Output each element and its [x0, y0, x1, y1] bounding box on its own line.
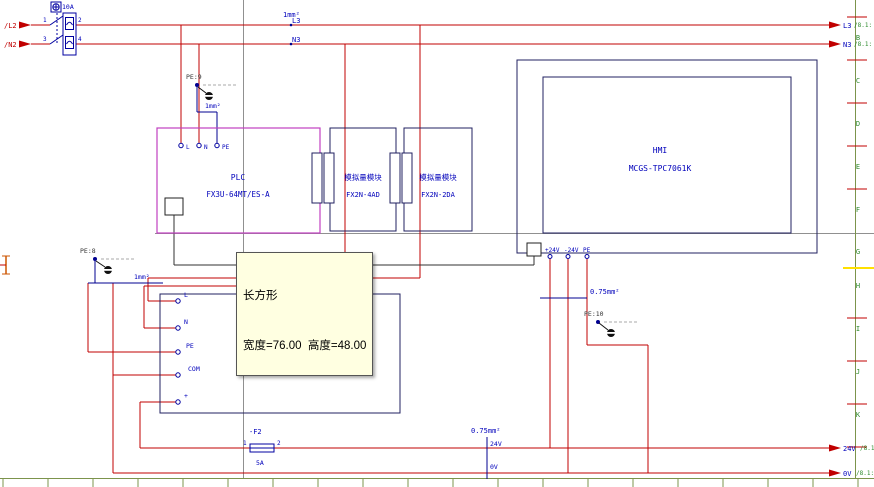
net-n3-label: N3: [292, 36, 300, 44]
row-letter: J: [856, 368, 860, 376]
xref-l3: /8.1:: [854, 22, 872, 29]
hmi-outer: [517, 60, 817, 253]
pe9-label: PE:9: [186, 73, 202, 81]
drawing-frame: B C D E F G H I J K: [0, 0, 874, 487]
breaker-pin: 4: [78, 36, 82, 43]
psu-terminal-plus: +: [184, 392, 188, 400]
arrow-out-l3: [829, 22, 841, 29]
module-1-title: 模拟量模块: [344, 172, 382, 182]
plc-terminal-n: N: [204, 144, 208, 151]
arrow-out-n3: [829, 41, 841, 48]
source-l2-label: /L2: [4, 22, 17, 30]
net-24v-out: 24V: [843, 445, 856, 453]
breaker-pin: 2: [78, 17, 82, 24]
row-letter: G: [856, 248, 860, 256]
plc-terminal-l: L: [186, 144, 190, 151]
measurement-tooltip: 长方形 宽度=76.00 高度=48.00: [236, 252, 373, 376]
arrow-in-l2: [19, 22, 31, 29]
row-letter: F: [856, 206, 860, 214]
net-0v-out: 0V: [843, 470, 852, 478]
row-letter: K: [856, 411, 861, 419]
row-letter: E: [856, 163, 860, 171]
wire-size-pe10: 0.75mm²: [590, 288, 620, 296]
frame-bottom-ticks: [3, 478, 858, 487]
bus-connector: [312, 153, 322, 203]
cad-schematic-canvas: B C D E F G H I J K: [0, 0, 874, 487]
net-l3-out: L3: [843, 22, 851, 30]
net-n3-out: N3: [843, 41, 851, 49]
fuse-pin-1: 1: [243, 440, 247, 447]
bus-connector: [324, 153, 334, 203]
tooltip-detail: 宽度=76.00 高度=48.00: [243, 338, 366, 355]
hmi-model: MCGS-TPC7061K: [629, 164, 692, 173]
wire-size-pe9: 1mm²: [205, 102, 221, 110]
wire-labels: /L2 /N2 10A 1 2 3 4 1mm² L3 N3 1mm² 1mm²…: [4, 3, 874, 478]
schematic-svg: B C D E F G H I J K: [0, 0, 874, 487]
plc-model: FX3U-64MT/ES-A: [206, 190, 270, 199]
arrow-out-0v: [829, 470, 841, 477]
construction-lines: [155, 0, 874, 478]
wire-size-pe8: 1mm²: [134, 273, 150, 281]
fuse-pin-2: 2: [277, 440, 281, 447]
plc-block[interactable]: L N PE PLC FX3U-64MT/ES-A: [157, 128, 320, 233]
module-2-model: FX2N-2DA: [421, 191, 456, 199]
hmi-comm-port[interactable]: [527, 243, 541, 256]
arrow-in-n2: [19, 41, 31, 48]
bus-connector: [390, 153, 400, 203]
row-letter: H: [856, 282, 860, 290]
net-0v-marker: 0V: [490, 463, 498, 471]
hmi-title: HMI: [653, 146, 668, 155]
psu-terminal-n: N: [184, 318, 188, 326]
plc-comm-port[interactable]: [165, 198, 183, 215]
power-wires[interactable]: [31, 25, 829, 473]
psu-terminal-l: L: [184, 291, 188, 299]
pen-cursor-icon: [96, 261, 112, 274]
hmi-terminal-pe: PE: [583, 247, 591, 254]
fuse-tag: -F2: [249, 428, 262, 436]
left-edge-symbol: [0, 256, 10, 274]
xref-0v: /8.1:: [856, 470, 874, 477]
psu-terminal-pe: PE: [186, 342, 194, 350]
hmi-terminal-24vn: -24V: [564, 247, 579, 254]
breaker-rating-label: 10A: [62, 3, 74, 11]
hmi-terminal-24vp: +24V: [545, 247, 560, 254]
breaker-pin: 1: [43, 17, 47, 24]
module-1-model: FX2N-4AD: [346, 191, 380, 199]
source-n2-label: /N2: [4, 41, 17, 49]
row-letter: I: [856, 325, 860, 333]
net-l3-label: L3: [292, 17, 300, 25]
pen-cursor-icon: [599, 323, 615, 337]
fuse-rating: 5A: [256, 459, 264, 467]
module-2-title: 模拟量模块: [419, 172, 457, 182]
net-24v-marker: 24V: [490, 440, 502, 448]
pe10-label: PE:10: [584, 310, 604, 318]
hmi-block[interactable]: HMI MCGS-TPC7061K +24V -24V PE: [517, 60, 817, 259]
bus-connector: [402, 153, 412, 203]
pe8-label: PE:8: [80, 247, 96, 255]
xref-n3: /8.1:: [854, 41, 872, 48]
net-arrows[interactable]: [19, 22, 841, 477]
arrow-out-24v: [829, 445, 841, 452]
tooltip-title: 长方形: [243, 288, 366, 305]
plc-title: PLC: [231, 173, 246, 182]
xref-24v: /8.1:: [860, 445, 874, 452]
breaker-pin: 3: [43, 36, 47, 43]
wire-size-bottom: 0.75mm²: [471, 427, 501, 435]
row-letter: C: [856, 77, 860, 85]
psu-terminal-com: COM: [188, 365, 200, 373]
hmi-screen: [543, 77, 791, 233]
pen-cursor-icon: [198, 87, 213, 100]
row-letter: D: [856, 120, 860, 128]
plc-terminal-pe: PE: [222, 144, 230, 151]
